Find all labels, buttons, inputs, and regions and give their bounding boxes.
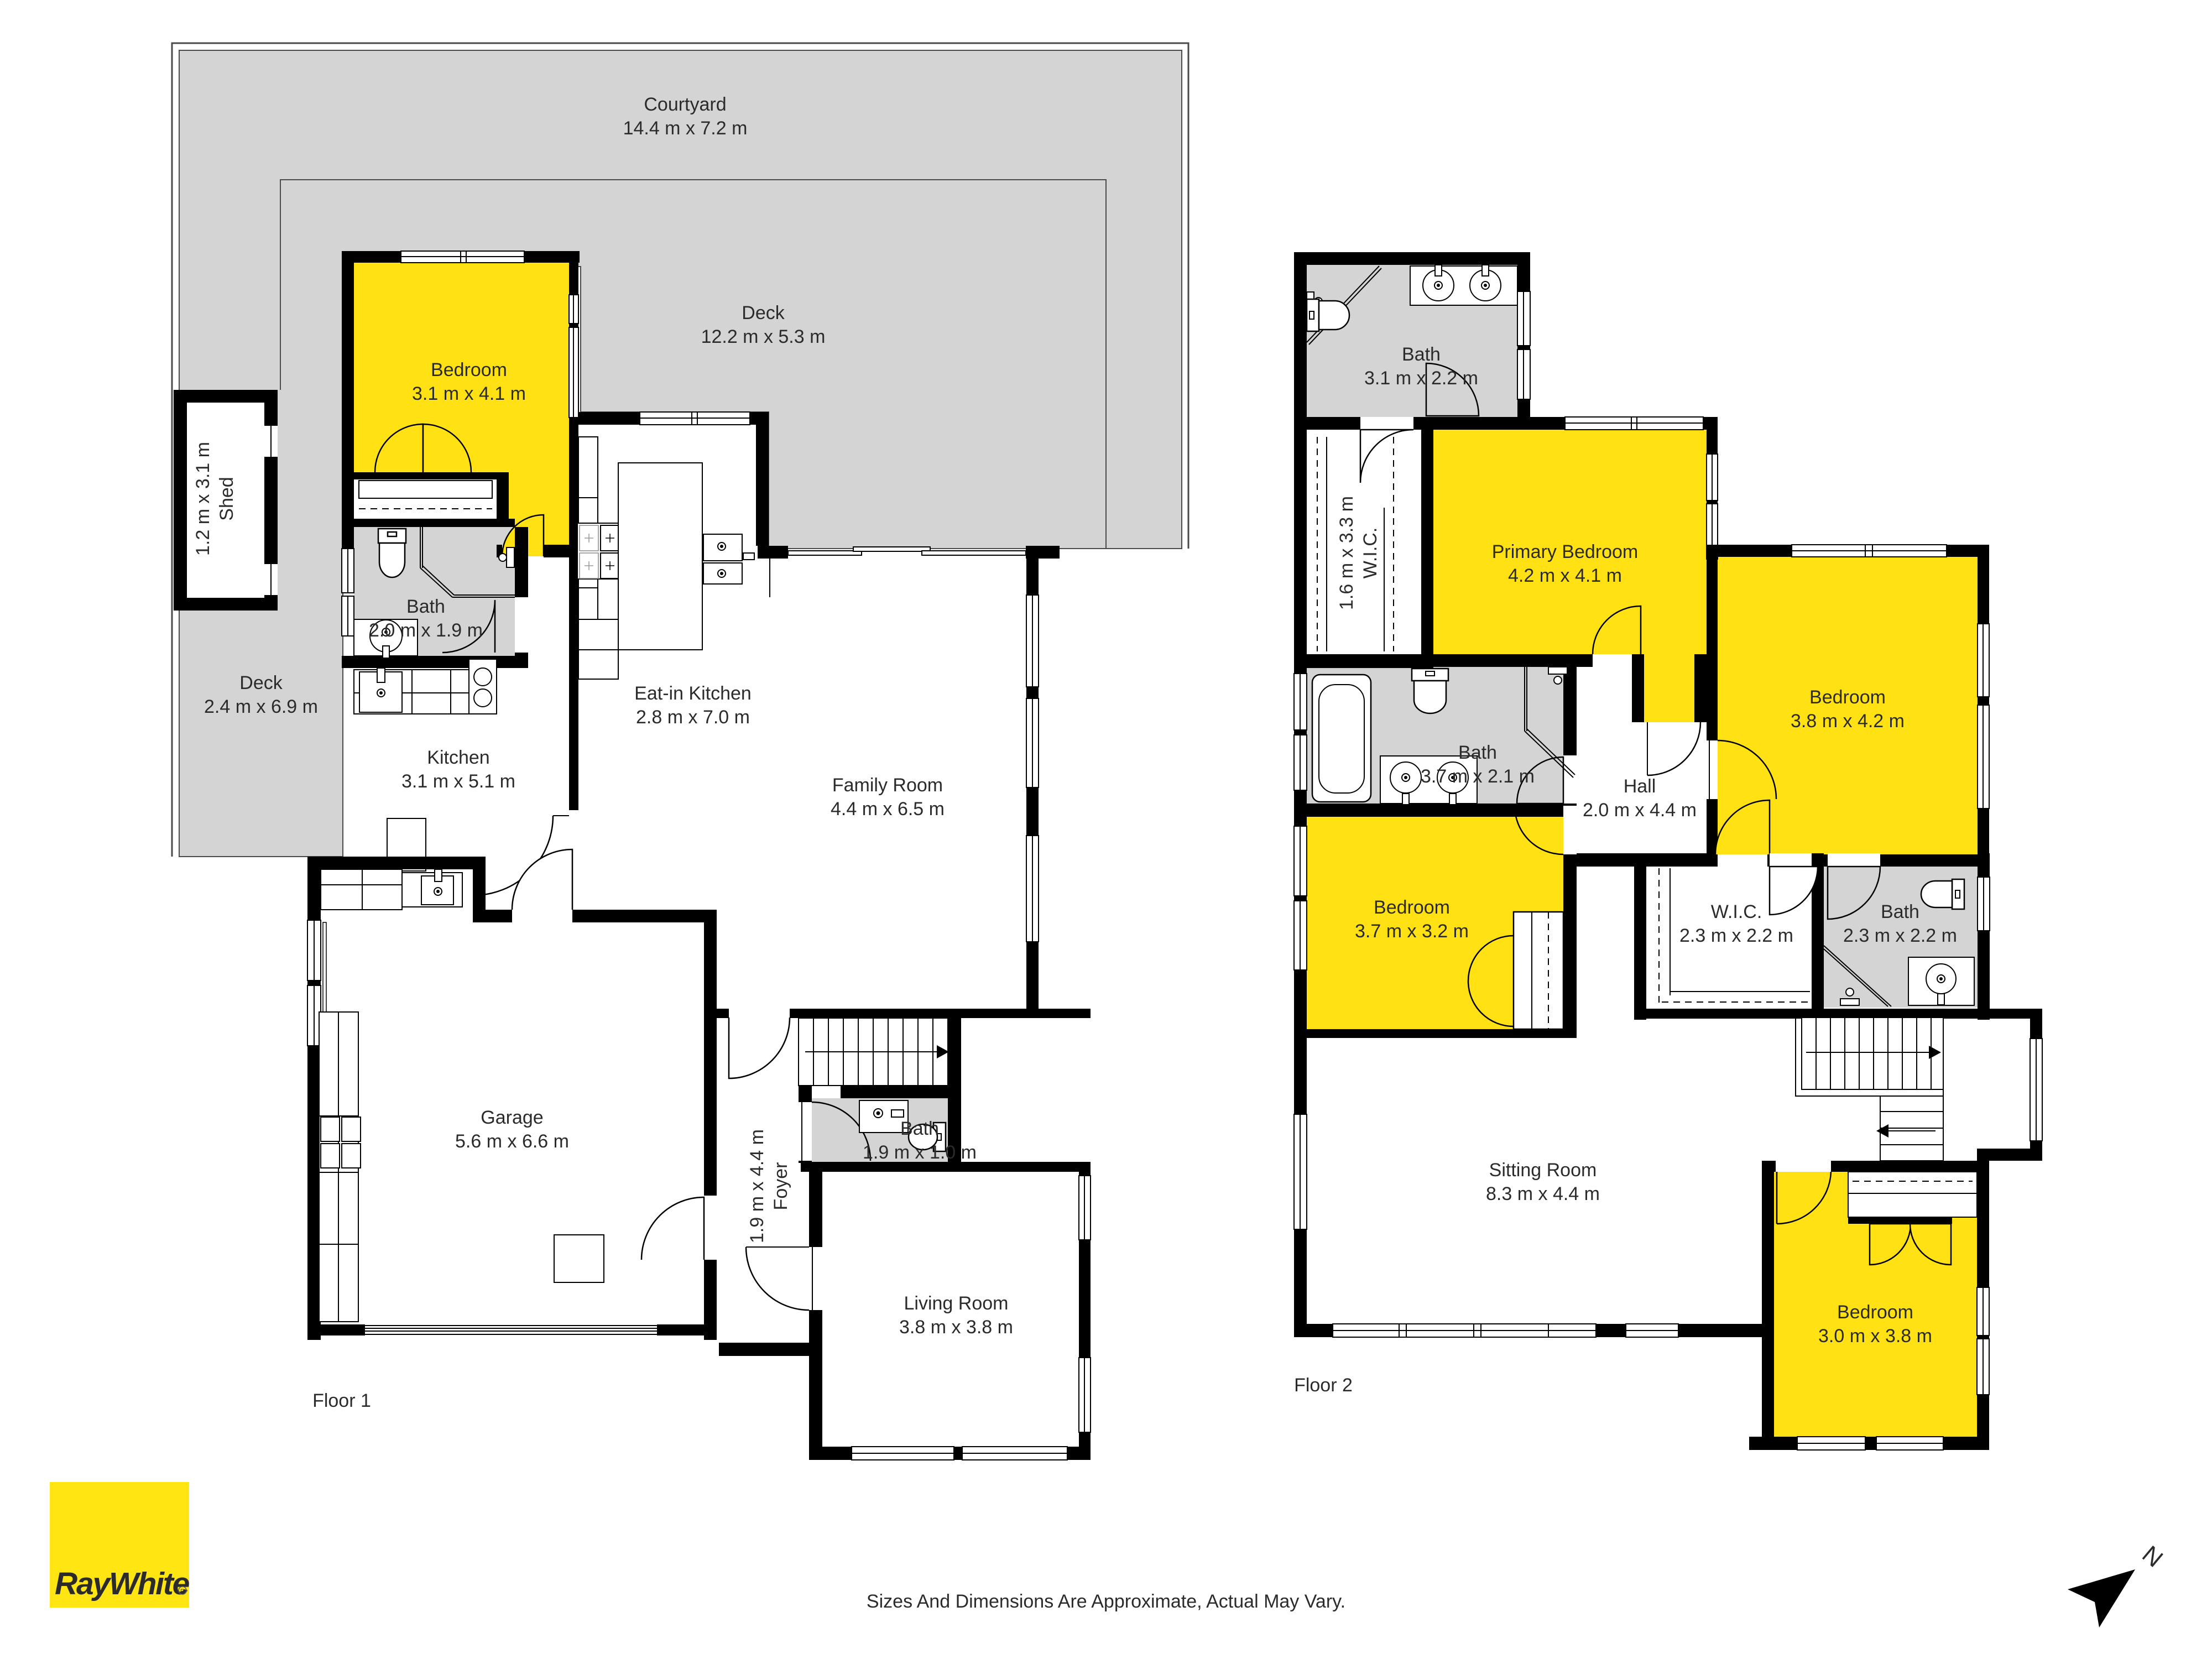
svg-text:2.8 m x 7.0 m: 2.8 m x 7.0 m: [636, 707, 750, 728]
svg-text:3.7 m x 2.1 m: 3.7 m x 2.1 m: [1421, 766, 1535, 787]
svg-text:Kitchen: Kitchen: [427, 747, 489, 768]
svg-text:2.3 m x 2.2 m: 2.3 m x 2.2 m: [1679, 925, 1793, 946]
svg-text:Bath: Bath: [1402, 344, 1441, 365]
svg-text:Bath: Bath: [1881, 901, 1919, 922]
svg-text:RayWhite: RayWhite: [55, 1566, 190, 1601]
svg-text:3.8 m x 3.8 m: 3.8 m x 3.8 m: [899, 1317, 1013, 1338]
svg-text:Primary Bedroom: Primary Bedroom: [1492, 541, 1639, 562]
svg-text:Sizes And Dimensions Are Appro: Sizes And Dimensions Are Approximate, Ac…: [867, 1591, 1345, 1612]
svg-text:8.3 m x 4.4 m: 8.3 m x 4.4 m: [1486, 1183, 1600, 1204]
svg-text:Bath: Bath: [406, 596, 445, 617]
svg-text:2.3 m x 2.2 m: 2.3 m x 2.2 m: [1843, 925, 1957, 946]
svg-text:3.7 m x 3.2 m: 3.7 m x 3.2 m: [1355, 921, 1469, 942]
svg-text:Floor 2: Floor 2: [1294, 1375, 1353, 1396]
svg-text:1.9 m x 4.4 m: 1.9 m x 4.4 m: [747, 1129, 768, 1243]
svg-text:2.4 m x 6.9 m: 2.4 m x 6.9 m: [204, 696, 318, 717]
svg-text:12.2 m x 5.3 m: 12.2 m x 5.3 m: [701, 326, 826, 347]
svg-text:Bath: Bath: [1458, 742, 1497, 763]
svg-text:14.4 m x 7.2 m: 14.4 m x 7.2 m: [623, 118, 748, 139]
svg-text:W.I.C.: W.I.C.: [1711, 901, 1762, 922]
svg-text:Floor 1: Floor 1: [312, 1390, 371, 1411]
svg-text:3.8 m x 4.2 m: 3.8 m x 4.2 m: [1791, 711, 1905, 732]
svg-text:Hall: Hall: [1624, 776, 1656, 797]
svg-text:Bath: Bath: [900, 1118, 939, 1139]
svg-text:1.2 m x 3.1 m: 1.2 m x 3.1 m: [192, 442, 213, 556]
svg-text:4.4 m x 6.5 m: 4.4 m x 6.5 m: [831, 799, 945, 820]
svg-text:3.0 m x 3.8 m: 3.0 m x 3.8 m: [1818, 1326, 1932, 1347]
svg-text:2.0 m x 1.9 m: 2.0 m x 1.9 m: [369, 620, 483, 641]
svg-text:Foyer: Foyer: [770, 1162, 791, 1211]
svg-text:2.0 m x 4.4 m: 2.0 m x 4.4 m: [1583, 800, 1697, 821]
svg-text:1.6 m x 3.3 m: 1.6 m x 3.3 m: [1336, 496, 1357, 610]
svg-text:Bedroom: Bedroom: [1837, 1302, 1913, 1323]
svg-text:Deck: Deck: [742, 302, 785, 324]
svg-text:Living Room: Living Room: [904, 1293, 1009, 1314]
svg-text:Shed: Shed: [216, 477, 237, 520]
svg-text:Garage: Garage: [481, 1107, 543, 1128]
svg-text:3.1 m x 4.1 m: 3.1 m x 4.1 m: [412, 383, 526, 404]
svg-text:Eat-in Kitchen: Eat-in Kitchen: [634, 683, 752, 704]
svg-text:Family Room: Family Room: [832, 775, 943, 796]
svg-text:3.1 m x 5.1 m: 3.1 m x 5.1 m: [401, 771, 515, 792]
svg-text:R: R: [180, 1588, 185, 1595]
svg-text:1.9 m x 1.0 m: 1.9 m x 1.0 m: [863, 1142, 977, 1163]
svg-text:Sitting Room: Sitting Room: [1489, 1160, 1597, 1181]
svg-text:Bedroom: Bedroom: [1809, 687, 1886, 708]
svg-text:5.6 m x 6.6 m: 5.6 m x 6.6 m: [455, 1131, 569, 1152]
svg-text:Bedroom: Bedroom: [431, 359, 507, 380]
svg-text:Courtyard: Courtyard: [644, 94, 726, 115]
svg-text:3.1 m x 2.2 m: 3.1 m x 2.2 m: [1364, 368, 1478, 389]
svg-text:4.2 m x 4.1 m: 4.2 m x 4.1 m: [1508, 565, 1622, 586]
svg-text:Bedroom: Bedroom: [1374, 897, 1450, 918]
svg-text:W.I.C.: W.I.C.: [1360, 528, 1381, 579]
svg-text:Deck: Deck: [239, 672, 283, 693]
